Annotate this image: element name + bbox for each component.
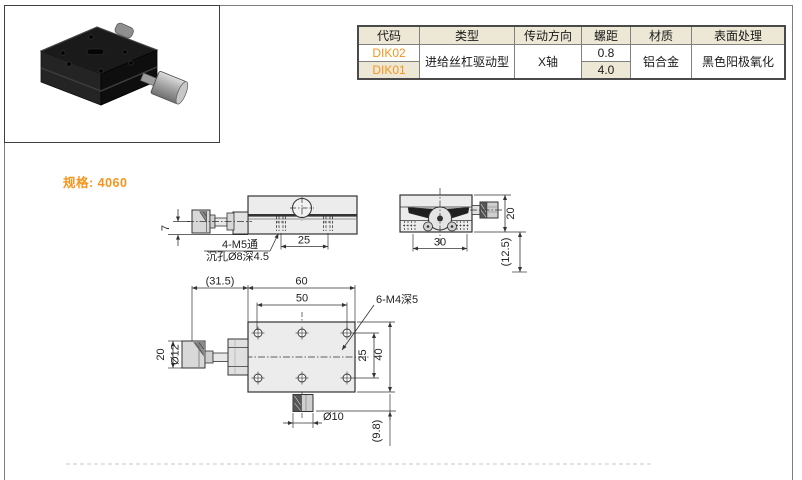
dim-25-label: 25 — [298, 235, 310, 247]
dim-dia10-label: Ø10 — [323, 411, 344, 423]
dim-31-5-label: (31.5) — [206, 276, 235, 288]
plan-view-drawing: 20 Ø12 (31.5) 60 50 6-M4深5 25 40 — [155, 276, 418, 447]
dim-20-label: 20 — [505, 207, 517, 219]
dim-60-label: 60 — [295, 276, 307, 288]
dim-20-knob-label: 20 — [155, 348, 167, 360]
m5-note-line2: 沉孔Ø8深4.5 — [206, 250, 269, 263]
technical-drawing: 7 4-M5通 沉孔Ø8深4.5 25 — [0, 0, 802, 480]
m4-note: 6-M4深5 — [376, 293, 418, 306]
dim-30-label: 30 — [434, 237, 446, 249]
dim-25-pitch-label: 25 — [357, 349, 369, 361]
end-view-drawing: 20 (12.5) 30 — [400, 188, 527, 272]
dim-7-label: 7 — [160, 225, 172, 231]
end-view-knob — [470, 202, 503, 218]
dim-dia12-label: Ø12 — [170, 344, 182, 365]
side-view-drawing: 7 4-M5通 沉孔Ø8深4.5 25 — [160, 196, 357, 263]
dim-40-label: 40 — [373, 348, 385, 360]
plan-view-lock-knob — [293, 395, 313, 412]
plan-view-knob — [182, 339, 248, 375]
dim-12-5-label: (12.5) — [500, 238, 512, 267]
dim-50-label: 50 — [296, 293, 308, 305]
catalog-page: 代码 类型 传动方向 螺距 材质 表面处理 DIK02 进给丝杠驱动型 X轴 0… — [0, 0, 802, 480]
m5-note-line1: 4-M5通 — [222, 238, 258, 251]
dim-9-8-label: (9.8) — [371, 420, 383, 443]
